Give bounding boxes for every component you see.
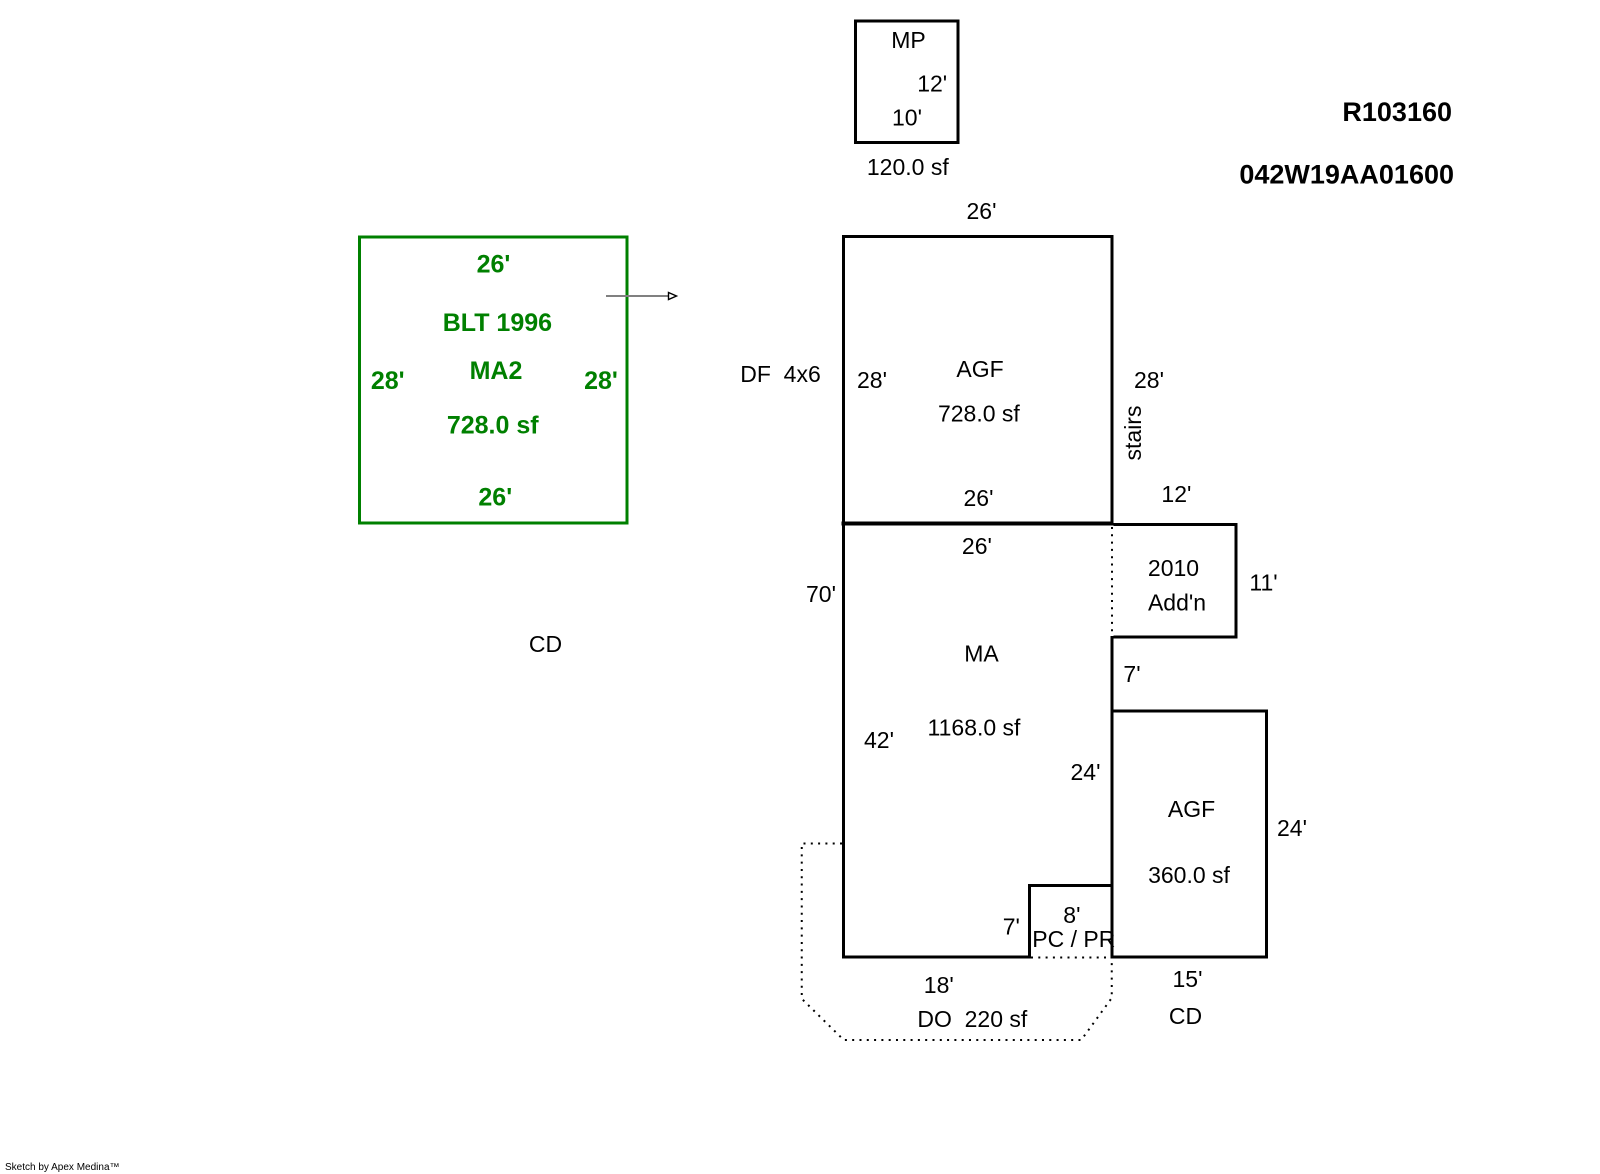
- svg-text:26': 26': [478, 484, 512, 512]
- svg-text:26': 26': [964, 485, 994, 511]
- svg-text:15': 15': [1173, 966, 1203, 992]
- svg-text:7': 7': [1003, 914, 1020, 940]
- svg-text:26': 26': [962, 533, 992, 559]
- svg-text:MA2: MA2: [470, 357, 523, 385]
- svg-text:8': 8': [1063, 902, 1080, 928]
- svg-text:10': 10': [892, 105, 922, 131]
- svg-text:11': 11': [1249, 570, 1277, 596]
- svg-text:CD: CD: [529, 631, 562, 657]
- svg-text:28': 28': [857, 367, 887, 393]
- svg-text:PC / PR: PC / PR: [1032, 926, 1115, 952]
- svg-text:28': 28': [371, 367, 405, 395]
- svg-text:MA: MA: [964, 641, 999, 667]
- svg-text:2010: 2010: [1148, 555, 1199, 581]
- svg-text:DO 220 sf: DO 220 sf: [917, 1006, 1028, 1032]
- svg-text:Add'n: Add'n: [1148, 590, 1206, 616]
- svg-text:Sketch by Apex Medina™: Sketch by Apex Medina™: [5, 1162, 120, 1173]
- svg-text:12': 12': [917, 71, 947, 97]
- svg-text:120.0 sf: 120.0 sf: [867, 154, 949, 180]
- svg-text:12': 12': [1161, 481, 1191, 507]
- svg-text:24': 24': [1071, 759, 1101, 785]
- svg-text:MP: MP: [891, 27, 926, 53]
- svg-text:28': 28': [584, 367, 618, 395]
- svg-text:70': 70': [806, 581, 836, 607]
- svg-text:DF 4x6: DF 4x6: [740, 361, 821, 387]
- svg-text:stairs: stairs: [1120, 406, 1146, 461]
- svg-text:24': 24': [1277, 815, 1307, 841]
- svg-text:28': 28': [1134, 367, 1164, 393]
- svg-text:728.0 sf: 728.0 sf: [938, 401, 1020, 427]
- svg-text:7': 7': [1123, 661, 1140, 687]
- svg-text:42': 42': [864, 727, 894, 753]
- svg-text:1168.0 sf: 1168.0 sf: [928, 715, 1022, 741]
- svg-text:R103160: R103160: [1342, 97, 1452, 127]
- svg-text:26': 26': [477, 251, 511, 279]
- svg-text:BLT 1996: BLT 1996: [443, 309, 552, 337]
- svg-text:CD: CD: [1169, 1003, 1202, 1029]
- svg-text:26': 26': [967, 198, 997, 224]
- svg-text:360.0 sf: 360.0 sf: [1148, 862, 1230, 888]
- svg-text:18': 18': [924, 972, 954, 998]
- svg-text:AGF: AGF: [1168, 796, 1215, 822]
- svg-text:042W19AA01600: 042W19AA01600: [1239, 160, 1454, 190]
- svg-text:AGF: AGF: [956, 356, 1003, 382]
- svg-text:728.0 sf: 728.0 sf: [447, 412, 539, 440]
